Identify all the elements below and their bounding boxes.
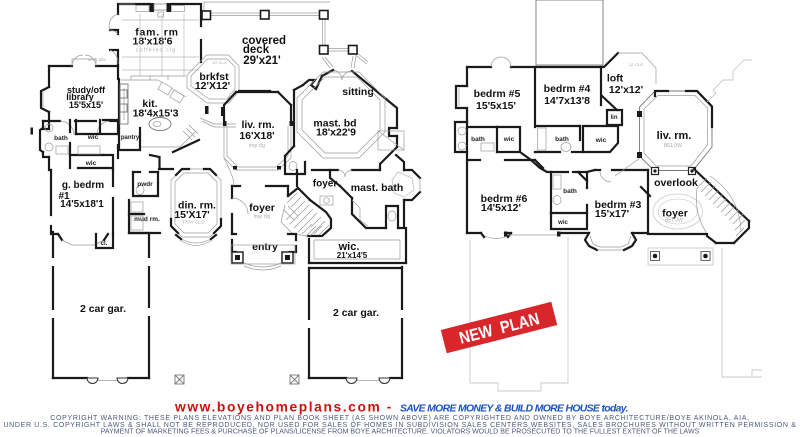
svg-text:BELOW: BELOW: [664, 143, 682, 149]
svg-text:bath: bath: [54, 135, 68, 142]
svg-text:g. bedrm: g. bedrm: [62, 180, 104, 191]
svg-text:SAVE MORE MONEY & BUILD MORE H: SAVE MORE MONEY & BUILD MORE HOUSE today…: [400, 404, 628, 415]
svg-text:loft: loft: [607, 73, 624, 85]
svg-text:14'5x12': 14'5x12': [481, 202, 521, 214]
svg-text:PAYMENT OF MARKETING FEES & PU: PAYMENT OF MARKETING FEES & PURCHASE OF …: [101, 429, 700, 436]
svg-text:COPYRIGHT WARNING: THESE PLANS: COPYRIGHT WARNING: THESE PLANS ELEVATION…: [50, 415, 749, 422]
svg-text:foyer: foyer: [249, 202, 275, 214]
svg-text:bath: bath: [563, 188, 577, 195]
svg-text:14'5x18'1: 14'5x18'1: [60, 199, 104, 210]
svg-text:2 car gar.: 2 car gar.: [333, 307, 379, 319]
svg-text:lin: lin: [611, 115, 618, 121]
svg-text:12' CLG: 12' CLG: [629, 62, 644, 67]
svg-text:bedrm #4: bedrm #4: [544, 83, 591, 95]
svg-text:21'x14'5: 21'x14'5: [337, 251, 368, 260]
svg-text:BELOW: BELOW: [665, 218, 683, 224]
svg-text:18'x22'9: 18'x22'9: [316, 127, 356, 139]
svg-text:12'X12': 12'X12': [195, 80, 230, 92]
svg-text:tray clg: tray clg: [254, 214, 270, 220]
svg-text:10' CLG: 10' CLG: [212, 60, 227, 65]
svg-text:bath: bath: [471, 136, 485, 143]
svg-text:bedrm #5: bedrm #5: [474, 88, 521, 100]
svg-text:coffered clg: coffered clg: [136, 48, 176, 54]
svg-text:16'X18': 16'X18': [239, 130, 274, 142]
svg-text:mud rm.: mud rm.: [134, 216, 160, 223]
svg-text:15'5x15': 15'5x15': [476, 100, 516, 112]
svg-text:overlook: overlook: [654, 177, 698, 189]
svg-text:wic: wic: [503, 136, 515, 143]
svg-text:14'7x13'8: 14'7x13'8: [544, 95, 590, 107]
svg-text:wic: wic: [87, 134, 99, 141]
svg-text:deck abv: deck abv: [88, 57, 107, 62]
svg-text:sitting: sitting: [342, 86, 374, 98]
svg-text:wic: wic: [557, 220, 568, 226]
svg-text:cl.: cl.: [101, 241, 108, 247]
svg-text:15'x17': 15'x17': [595, 208, 629, 220]
svg-text:entry: entry: [252, 241, 278, 253]
svg-text:12'x12': 12'x12': [609, 84, 643, 96]
svg-text:liv. rm.: liv. rm.: [657, 130, 692, 142]
svg-text:tray clg: tray clg: [249, 143, 265, 149]
svg-text:2 car gar.: 2 car gar.: [80, 303, 126, 315]
svg-text:pantry: pantry: [121, 135, 140, 141]
svg-text:wic: wic: [85, 160, 97, 167]
svg-text:18'x18'6: 18'x18'6: [132, 36, 172, 48]
svg-text:TRAY CLG: TRAY CLG: [182, 220, 205, 225]
svg-text:18'4x15'3: 18'4x15'3: [133, 108, 179, 120]
svg-text:foyer: foyer: [313, 179, 338, 190]
svg-text:bath: bath: [555, 136, 569, 143]
svg-text:pwdr: pwdr: [137, 181, 153, 188]
svg-text:wic: wic: [595, 137, 607, 144]
svg-text:mast. bath: mast. bath: [351, 182, 404, 194]
svg-text:15'5x15': 15'5x15': [69, 100, 103, 110]
svg-text:29'x21': 29'x21': [243, 55, 281, 67]
svg-text:www.boyehomeplans.com -: www.boyehomeplans.com -: [174, 400, 393, 415]
